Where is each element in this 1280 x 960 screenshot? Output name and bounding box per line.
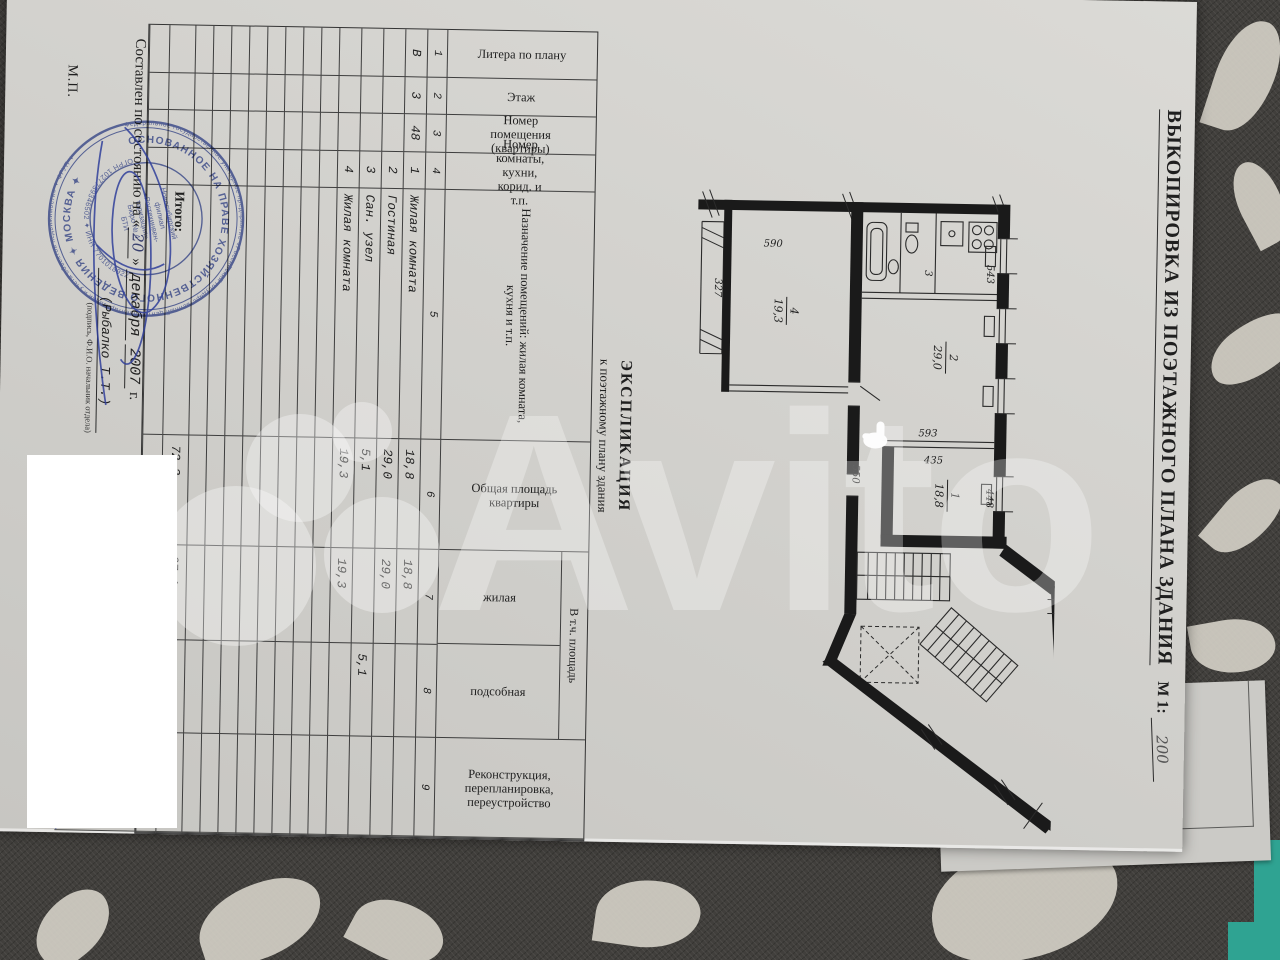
redaction-box bbox=[27, 455, 177, 828]
empty-cell bbox=[271, 735, 291, 835]
svg-text:4: 4 bbox=[787, 306, 800, 314]
cell-reconstruction bbox=[391, 737, 415, 837]
col-header-purpose: Назначение помещений: жилая комната, кух… bbox=[440, 190, 594, 443]
cell-room-name: Жилая комната bbox=[398, 189, 424, 439]
empty-cell bbox=[204, 436, 224, 546]
group-header: В т.ч. площадь bbox=[558, 552, 588, 739]
fabric-leaf bbox=[1198, 465, 1280, 566]
cell-room-num: 3 bbox=[359, 151, 382, 188]
cell-litera bbox=[383, 29, 406, 77]
floor-plan: 327 590 4 19,3 550 bbox=[625, 142, 1062, 849]
cell-living: 18,8 bbox=[395, 549, 419, 644]
empty-cell bbox=[283, 150, 302, 187]
cell-room-num: 2 bbox=[381, 152, 404, 189]
col-number: 1 bbox=[427, 30, 448, 78]
room-2-label: 2 29,0 bbox=[930, 341, 960, 374]
empty-cell bbox=[235, 734, 255, 834]
col-number: 2 bbox=[426, 78, 447, 115]
totals-row-start bbox=[169, 25, 196, 73]
empty-cell bbox=[301, 112, 320, 150]
empty-cell bbox=[294, 437, 314, 547]
col-number: 6 bbox=[418, 440, 440, 550]
cell-etazh: 3 bbox=[404, 77, 427, 114]
cell-apt bbox=[359, 113, 382, 151]
cell-aux bbox=[393, 644, 417, 737]
cell-room-name: Сан. узел bbox=[354, 188, 380, 438]
empty-cell bbox=[276, 437, 296, 547]
dim-435: 435 bbox=[923, 455, 943, 466]
empty-cell bbox=[265, 150, 284, 187]
cell-apt bbox=[381, 114, 404, 152]
cell-litera bbox=[339, 28, 362, 76]
cell-room-num: 1 bbox=[403, 152, 426, 189]
cell-room-num: 4 bbox=[337, 151, 360, 188]
cell-living bbox=[351, 548, 375, 643]
title-row: ВЫКОПИРОВКА ИЗ ПОЭТАЖНОГО ПЛАНА ЗДАНИЯ М… bbox=[1146, 1, 1187, 851]
cell-etazh bbox=[360, 76, 383, 113]
fabric-flower bbox=[1199, 298, 1280, 399]
empty-cell bbox=[231, 26, 250, 74]
empty-cell bbox=[213, 26, 232, 74]
empty-cell bbox=[248, 74, 267, 111]
empty-cell bbox=[320, 76, 339, 113]
empty-cell bbox=[212, 74, 231, 111]
empty-cell bbox=[203, 546, 223, 641]
empty-cell bbox=[265, 112, 284, 150]
empty-cell bbox=[267, 27, 286, 75]
empty-cell bbox=[240, 436, 260, 546]
cell-room-name: Гостиная bbox=[376, 189, 402, 439]
empty-cell bbox=[307, 736, 327, 836]
dim-550: 550 bbox=[850, 464, 861, 484]
empty-cell bbox=[258, 437, 278, 547]
scale-value-handwritten: 200 bbox=[1151, 717, 1172, 782]
empty-cell bbox=[237, 641, 257, 734]
cell-total: 18,8 bbox=[396, 439, 420, 549]
fabric-leaf bbox=[1199, 12, 1280, 140]
empty-cell bbox=[249, 26, 268, 74]
empty-cell bbox=[309, 643, 329, 736]
cell-aux bbox=[371, 644, 395, 737]
dim-593: 593 bbox=[918, 428, 937, 439]
empty-cell bbox=[291, 642, 311, 735]
empty-cell bbox=[181, 733, 201, 833]
empty-cell bbox=[199, 734, 219, 834]
empty-cell bbox=[201, 641, 221, 734]
totals-cell bbox=[168, 73, 195, 110]
empty-cell bbox=[185, 545, 205, 640]
empty-cell bbox=[275, 547, 295, 642]
empty-cell bbox=[319, 151, 338, 188]
empty-cell bbox=[266, 75, 285, 112]
dim-543: 543 bbox=[984, 264, 995, 283]
cell-litera bbox=[361, 28, 384, 76]
svg-text:19,3: 19,3 bbox=[771, 298, 784, 323]
floor-plan-drawing: 327 590 4 19,3 550 bbox=[625, 140, 1062, 852]
empty-cell bbox=[253, 735, 273, 835]
empty-cell bbox=[221, 546, 241, 641]
empty-cell bbox=[219, 641, 239, 734]
col-number: 7 bbox=[417, 549, 439, 644]
empty-cell bbox=[183, 640, 203, 733]
cell-living: 19,3 bbox=[329, 548, 353, 643]
fabric-leaf bbox=[188, 866, 333, 960]
cell-total: 29,0 bbox=[374, 439, 398, 549]
svg-text:1: 1 bbox=[948, 492, 961, 499]
fabric-leaf bbox=[1220, 155, 1280, 252]
cell-total: 5,1 bbox=[352, 438, 376, 548]
empty-cell bbox=[255, 642, 275, 735]
col-number: 3 bbox=[425, 115, 446, 153]
cell-etazh bbox=[382, 77, 405, 114]
dim-327: 327 bbox=[712, 278, 723, 298]
empty-cell bbox=[194, 74, 213, 111]
cell-apt: 48 bbox=[403, 114, 426, 152]
col-header-incl-area-group: В т.ч. площадь жилая подсобная bbox=[435, 550, 588, 741]
empty-cell bbox=[303, 27, 322, 75]
col-number: 8 bbox=[415, 644, 437, 737]
col-header-reconstruction: Реконструкция, перепланировка, переустро… bbox=[433, 738, 585, 841]
empty-cell bbox=[186, 435, 206, 545]
empty-cell bbox=[285, 27, 304, 75]
cell-apt bbox=[337, 113, 360, 151]
empty-cell bbox=[301, 150, 320, 187]
ink-signature bbox=[62, 112, 187, 414]
hand-cursor-watermark-icon bbox=[862, 421, 887, 448]
cell-reconstruction bbox=[325, 736, 349, 836]
empty-cell bbox=[149, 25, 170, 73]
empty-cell bbox=[283, 112, 302, 150]
empty-cell bbox=[284, 75, 303, 112]
empty-cell bbox=[321, 28, 340, 76]
col-header-litera: Литера по плану bbox=[447, 30, 598, 81]
scale-label: М 1: 200 bbox=[1151, 681, 1172, 782]
cell-etazh bbox=[338, 76, 361, 113]
empty-cell bbox=[319, 113, 338, 151]
fabric-leaf bbox=[1187, 612, 1279, 680]
document-paper: ВЫКОПИРОВКА ИЗ ПОЭТАЖНОГО ПЛАНА ЗДАНИЯ М… bbox=[0, 0, 1197, 852]
empty-cell bbox=[293, 547, 313, 642]
col-header-total-area: Общая площадь квартиры bbox=[438, 440, 590, 553]
dim-590: 590 bbox=[764, 238, 784, 249]
empty-cell bbox=[239, 546, 259, 641]
room-4-label: 4 19,3 bbox=[771, 296, 800, 325]
cell-room-name: Жилая комната bbox=[332, 188, 358, 438]
fabric-leaf bbox=[343, 884, 452, 960]
cell-aux: 5,1 bbox=[349, 643, 373, 736]
empty-cell bbox=[289, 735, 309, 835]
empty-cell bbox=[302, 75, 321, 112]
photo-of-document: ВЫКОПИРОВКА ИЗ ПОЭТАЖНОГО ПЛАНА ЗДАНИЯ М… bbox=[0, 0, 1280, 960]
teal-fabric-patch bbox=[1228, 922, 1280, 960]
cell-living: 29,0 bbox=[373, 549, 397, 644]
empty-cell bbox=[222, 436, 242, 546]
room-3-label: 3 bbox=[922, 270, 933, 277]
svg-text:29,0: 29,0 bbox=[931, 344, 944, 370]
mp-label: М.П. bbox=[63, 64, 80, 98]
empty-cell bbox=[230, 74, 249, 111]
col-header-room: Номер комнаты, кухни, корид. и т.п. bbox=[445, 153, 596, 193]
cell-total: 19,3 bbox=[330, 438, 354, 548]
empty-cell bbox=[195, 26, 214, 74]
room-1-label: 1 18,8 bbox=[932, 479, 962, 512]
cell-litera: В bbox=[405, 29, 428, 77]
empty-cell bbox=[311, 548, 331, 643]
cell-reconstruction bbox=[369, 737, 393, 837]
col-header-aux: подсобная bbox=[436, 644, 560, 739]
cell-aux bbox=[327, 643, 351, 736]
col-header-etazh: Этаж bbox=[446, 78, 597, 118]
fabric-leaf bbox=[21, 878, 124, 960]
empty-cell bbox=[257, 547, 277, 642]
empty-cell bbox=[312, 438, 332, 548]
col-number: 4 bbox=[425, 153, 446, 190]
empty-cell bbox=[217, 734, 237, 834]
col-header-living: жилая bbox=[438, 550, 562, 646]
document-title: ВЫКОПИРОВКА ИЗ ПОЭТАЖНОГО ПЛАНА ЗДАНИЯ bbox=[1149, 109, 1185, 665]
cell-reconstruction bbox=[347, 736, 371, 836]
fabric-leaf bbox=[592, 873, 704, 955]
svg-text:18,8: 18,8 bbox=[932, 483, 945, 508]
svg-text:2: 2 bbox=[947, 353, 960, 361]
col-number: 9 bbox=[413, 737, 435, 837]
empty-cell bbox=[148, 73, 169, 110]
empty-cell bbox=[273, 642, 293, 735]
